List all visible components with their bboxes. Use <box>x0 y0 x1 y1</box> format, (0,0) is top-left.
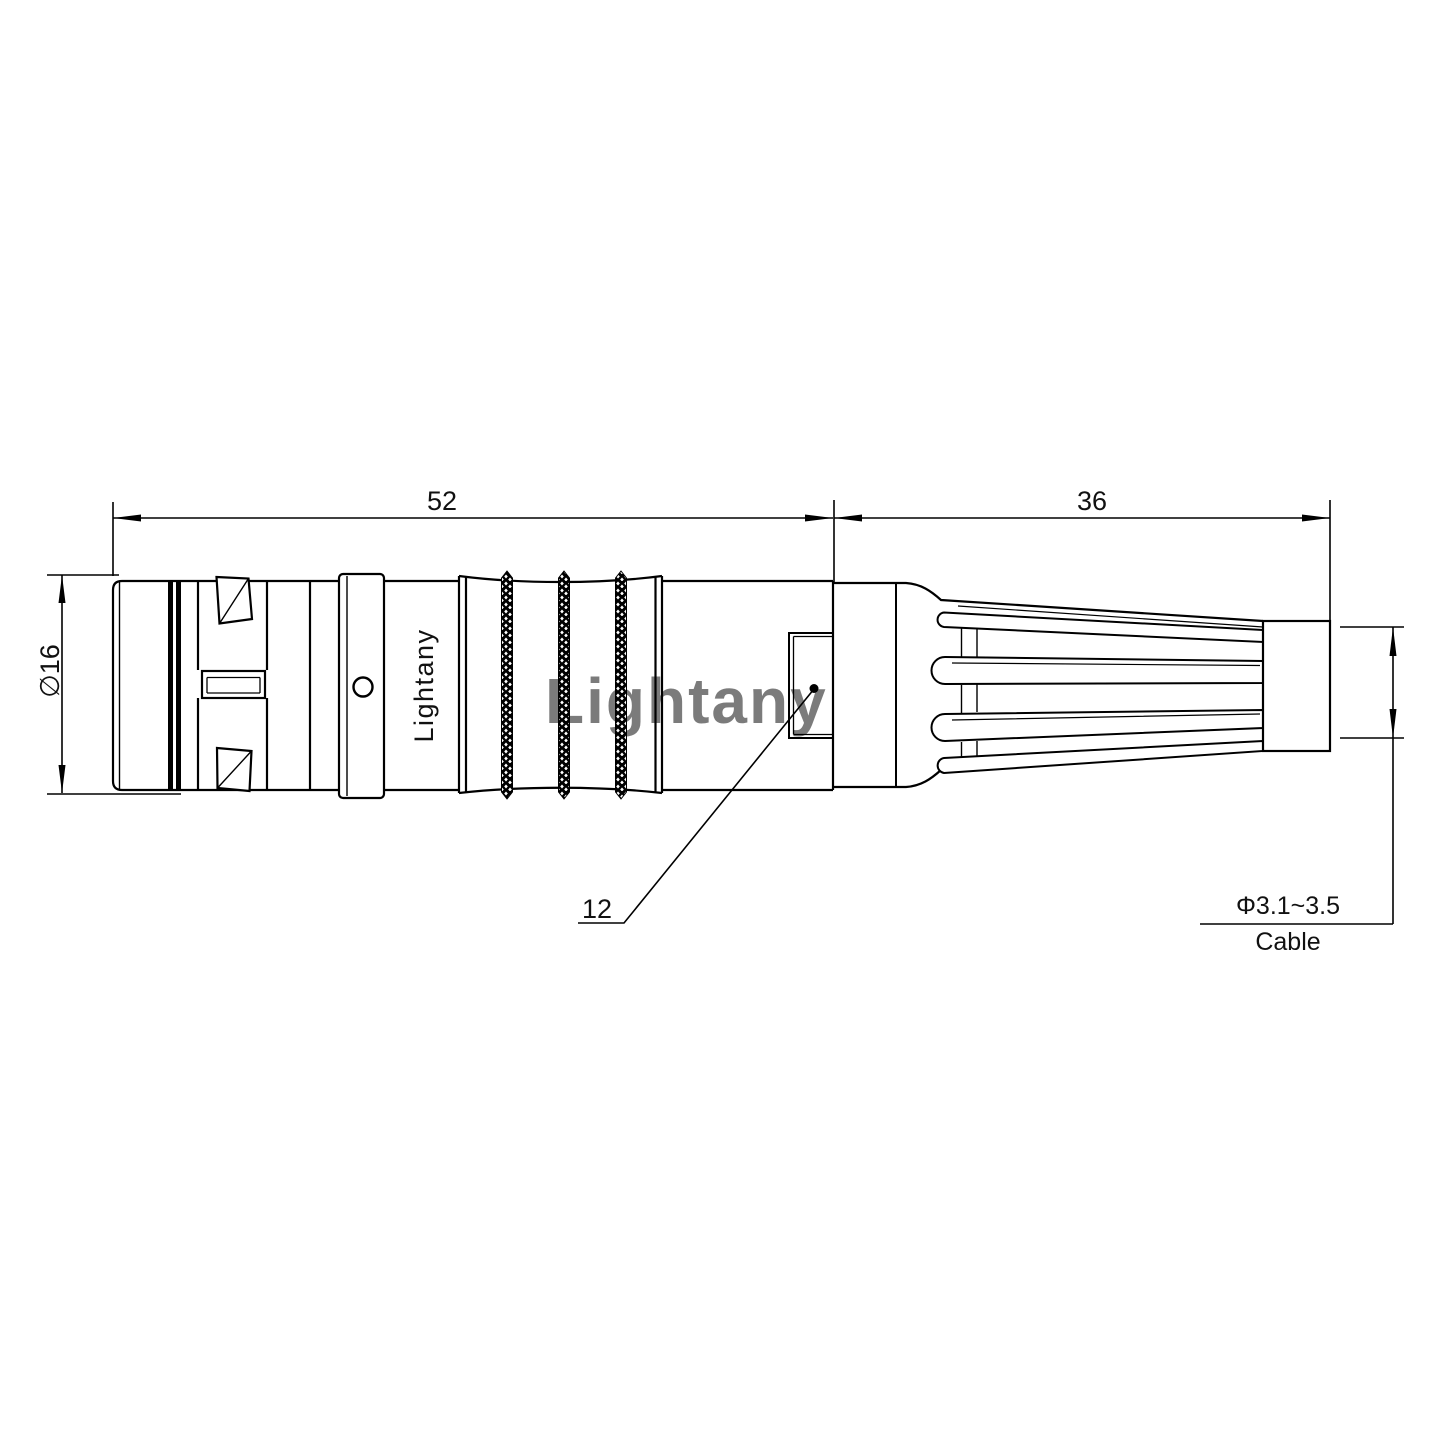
knurl-band-3 <box>616 571 627 799</box>
cable-diameter-label: Φ3.1~3.5 <box>1236 892 1340 920</box>
arrow-36-right <box>1302 515 1330 522</box>
watermark-text: Lightany <box>545 665 828 737</box>
bayonet-bridge <box>202 671 265 698</box>
spline-rib-2 <box>932 657 1264 684</box>
strain-relief-boot <box>833 583 1330 787</box>
arrow-36-left <box>834 515 862 522</box>
arrow-dia16-top <box>59 575 66 603</box>
arrow-dia16-bottom <box>59 765 66 793</box>
cable-end-sleeve <box>1263 621 1330 751</box>
leader-12-dot <box>810 684 819 693</box>
arrow-52-right <box>805 515 833 522</box>
technical-drawing-page: Lightany Light <box>0 0 1440 1440</box>
knurl-band-2 <box>559 571 570 799</box>
cable-label: Cable <box>1255 928 1320 956</box>
arrow-cable-top <box>1390 627 1397 656</box>
spline-rib-4 <box>938 741 1263 773</box>
arrow-52-left <box>113 515 141 522</box>
locating-hole <box>354 678 373 697</box>
groove-band-2 <box>176 581 181 790</box>
groove-band-1 <box>168 581 173 790</box>
dim-36-label: 36 <box>1077 486 1107 516</box>
connector-drawing: Lightany Light <box>0 0 1440 1440</box>
arrow-cable-bottom <box>1390 709 1397 738</box>
dim-52-label: 52 <box>427 486 457 516</box>
leader-12-label: 12 <box>582 894 612 924</box>
knurl-band-1 <box>502 571 513 799</box>
dim-diameter-label: ∅16 <box>35 644 65 698</box>
body-brand-text: Lightany <box>409 628 439 742</box>
boot-top-outline <box>833 583 1263 621</box>
body-outline-left <box>113 581 459 790</box>
